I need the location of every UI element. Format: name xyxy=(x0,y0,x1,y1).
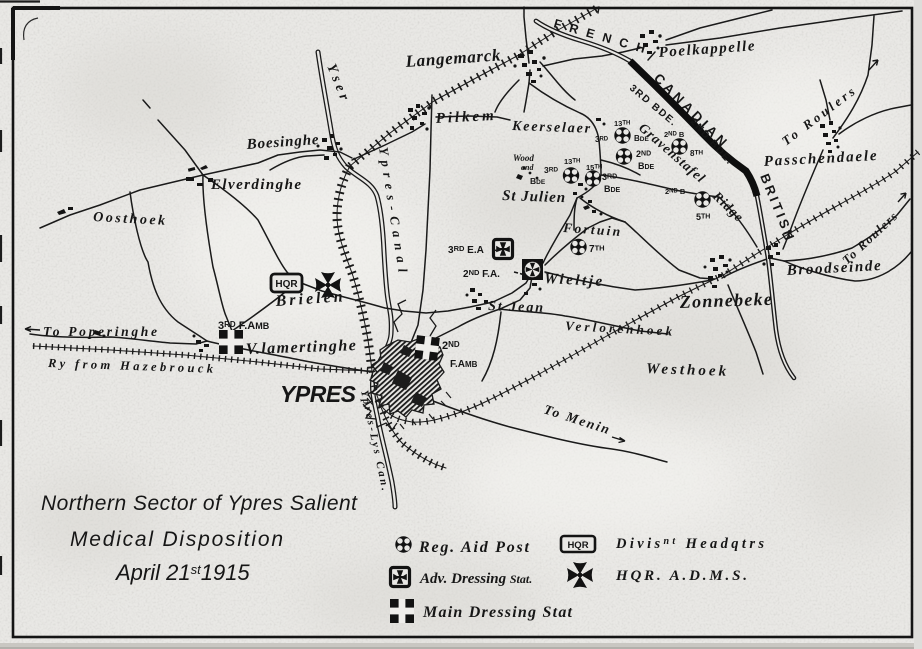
svg-text:Reg. Aid Post: Reg. Aid Post xyxy=(418,539,530,556)
svg-text:Divisnt Headqtrs: Divisnt Headqtrs xyxy=(615,536,764,552)
svg-text:St Julien: St Julien xyxy=(502,188,566,206)
svg-text:BDE: BDE xyxy=(634,134,649,143)
svg-text:Westhoek: Westhoek xyxy=(646,361,727,380)
svg-text:Adv. Dressing Stat.: Adv. Dressing Stat. xyxy=(419,571,532,587)
svg-text:and: and xyxy=(521,163,534,172)
svg-text:April 21st1915: April 21st1915 xyxy=(114,560,250,585)
svg-text:Main Dressing Stat: Main Dressing Stat xyxy=(422,604,573,621)
svg-text:Zonnebeke: Zonnebeke xyxy=(678,289,772,312)
svg-text:Wood: Wood xyxy=(513,153,534,163)
svg-text:HQR: HQR xyxy=(275,279,298,290)
svg-text:Northern Sector of Ypres Salie: Northern Sector of Ypres Salient xyxy=(41,492,358,515)
svg-text:YPRES: YPRES xyxy=(280,381,357,407)
svg-text:3RD E.A: 3RD E.A xyxy=(448,244,484,256)
svg-text:Keerselaer: Keerselaer xyxy=(511,119,591,137)
svg-text:HQR: HQR xyxy=(567,540,588,551)
svg-text:Pilkem: Pilkem xyxy=(435,108,494,127)
svg-text:F.AMB: F.AMB xyxy=(450,359,478,370)
svg-text:Elverdinghe: Elverdinghe xyxy=(210,177,301,193)
svg-text:Medical Disposition: Medical Disposition xyxy=(70,528,283,551)
